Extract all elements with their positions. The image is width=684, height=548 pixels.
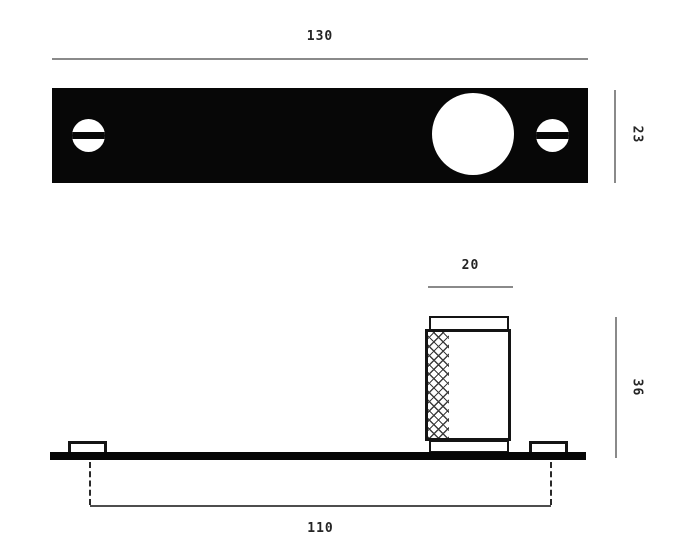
slotted-screw-left-icon — [72, 119, 105, 152]
dim-label-knob-diameter: 20 — [428, 259, 513, 272]
dim-line-knob-diameter — [428, 286, 513, 288]
dim-line-plate-height — [614, 90, 616, 183]
extension-line-right — [550, 462, 552, 505]
dim-line-plate-width — [52, 58, 588, 60]
dim-line-knob-height — [615, 317, 617, 458]
screw-lug-left — [68, 441, 107, 452]
dim-line-screw-spacing — [90, 505, 551, 507]
base-plate-side-view — [50, 452, 586, 460]
screw-slot — [72, 132, 105, 139]
extension-line-left — [89, 462, 91, 505]
slotted-screw-right-icon — [536, 119, 569, 152]
knurl-pattern — [428, 332, 449, 438]
knob-hole-top-view — [432, 93, 514, 175]
screw-lug-right — [529, 441, 568, 452]
dim-label-plate-height: 23 — [631, 120, 644, 150]
dim-label-knob-height: 36 — [631, 373, 644, 403]
dim-label-plate-width: 130 — [52, 30, 588, 43]
dim-label-screw-spacing: 110 — [90, 522, 551, 535]
technical-drawing-canvas: 130 23 20 36 110 — [0, 0, 684, 548]
screw-slot — [536, 132, 569, 139]
